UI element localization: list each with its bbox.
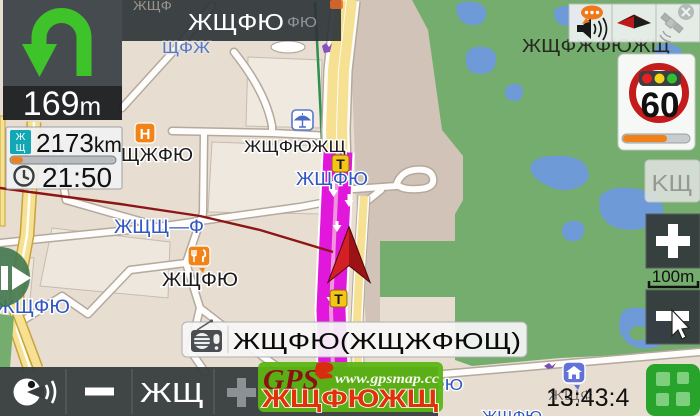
svg-text:ЖЩФЮ(ЖЩЖФЮЩ): ЖЩФЮ(ЖЩЖФЮЩ) bbox=[233, 328, 521, 354]
svg-text:ЖЩФ: ЖЩФ bbox=[133, 0, 172, 13]
svg-text:13:43:4: 13:43:4 bbox=[546, 384, 630, 412]
svg-text:T: T bbox=[334, 291, 343, 307]
svg-text:ФЮ: ФЮ bbox=[287, 14, 317, 31]
svg-text:ЩЖФЮ: ЩЖФЮ bbox=[121, 145, 193, 165]
svg-text:T: T bbox=[336, 156, 345, 172]
svg-text:Щ: Щ bbox=[16, 142, 26, 154]
svg-text:ЖЩФЮ: ЖЩФЮ bbox=[482, 408, 542, 416]
svg-text:ЖЩФЮ: ЖЩФЮ bbox=[296, 169, 368, 189]
svg-text:ЖЩФЮ: ЖЩФЮ bbox=[188, 9, 284, 35]
svg-text:ЖЩФЮЖЩ: ЖЩФЮЖЩ bbox=[244, 137, 346, 156]
svg-text:100m: 100m bbox=[652, 267, 695, 286]
svg-text:60: 60 bbox=[641, 86, 680, 125]
svg-text:169m: 169m bbox=[23, 85, 101, 123]
svg-text:ЖЩ: ЖЩ bbox=[140, 377, 204, 408]
svg-text:ЩФЖ: ЩФЖ bbox=[162, 40, 210, 57]
svg-text:KЩ: KЩ bbox=[652, 170, 693, 196]
svg-text:21:50: 21:50 bbox=[42, 162, 112, 193]
svg-text:www.gpsmap.cc: www.gpsmap.cc bbox=[335, 371, 439, 386]
svg-text:H: H bbox=[140, 126, 151, 143]
svg-text:ЖЩФЮ: ЖЩФЮ bbox=[162, 270, 238, 291]
svg-text:ЖЩФЮЖЩ: ЖЩФЮЖЩ bbox=[261, 385, 439, 413]
svg-text:ЖЩЩ—Ф: ЖЩЩ—Ф bbox=[114, 217, 204, 238]
